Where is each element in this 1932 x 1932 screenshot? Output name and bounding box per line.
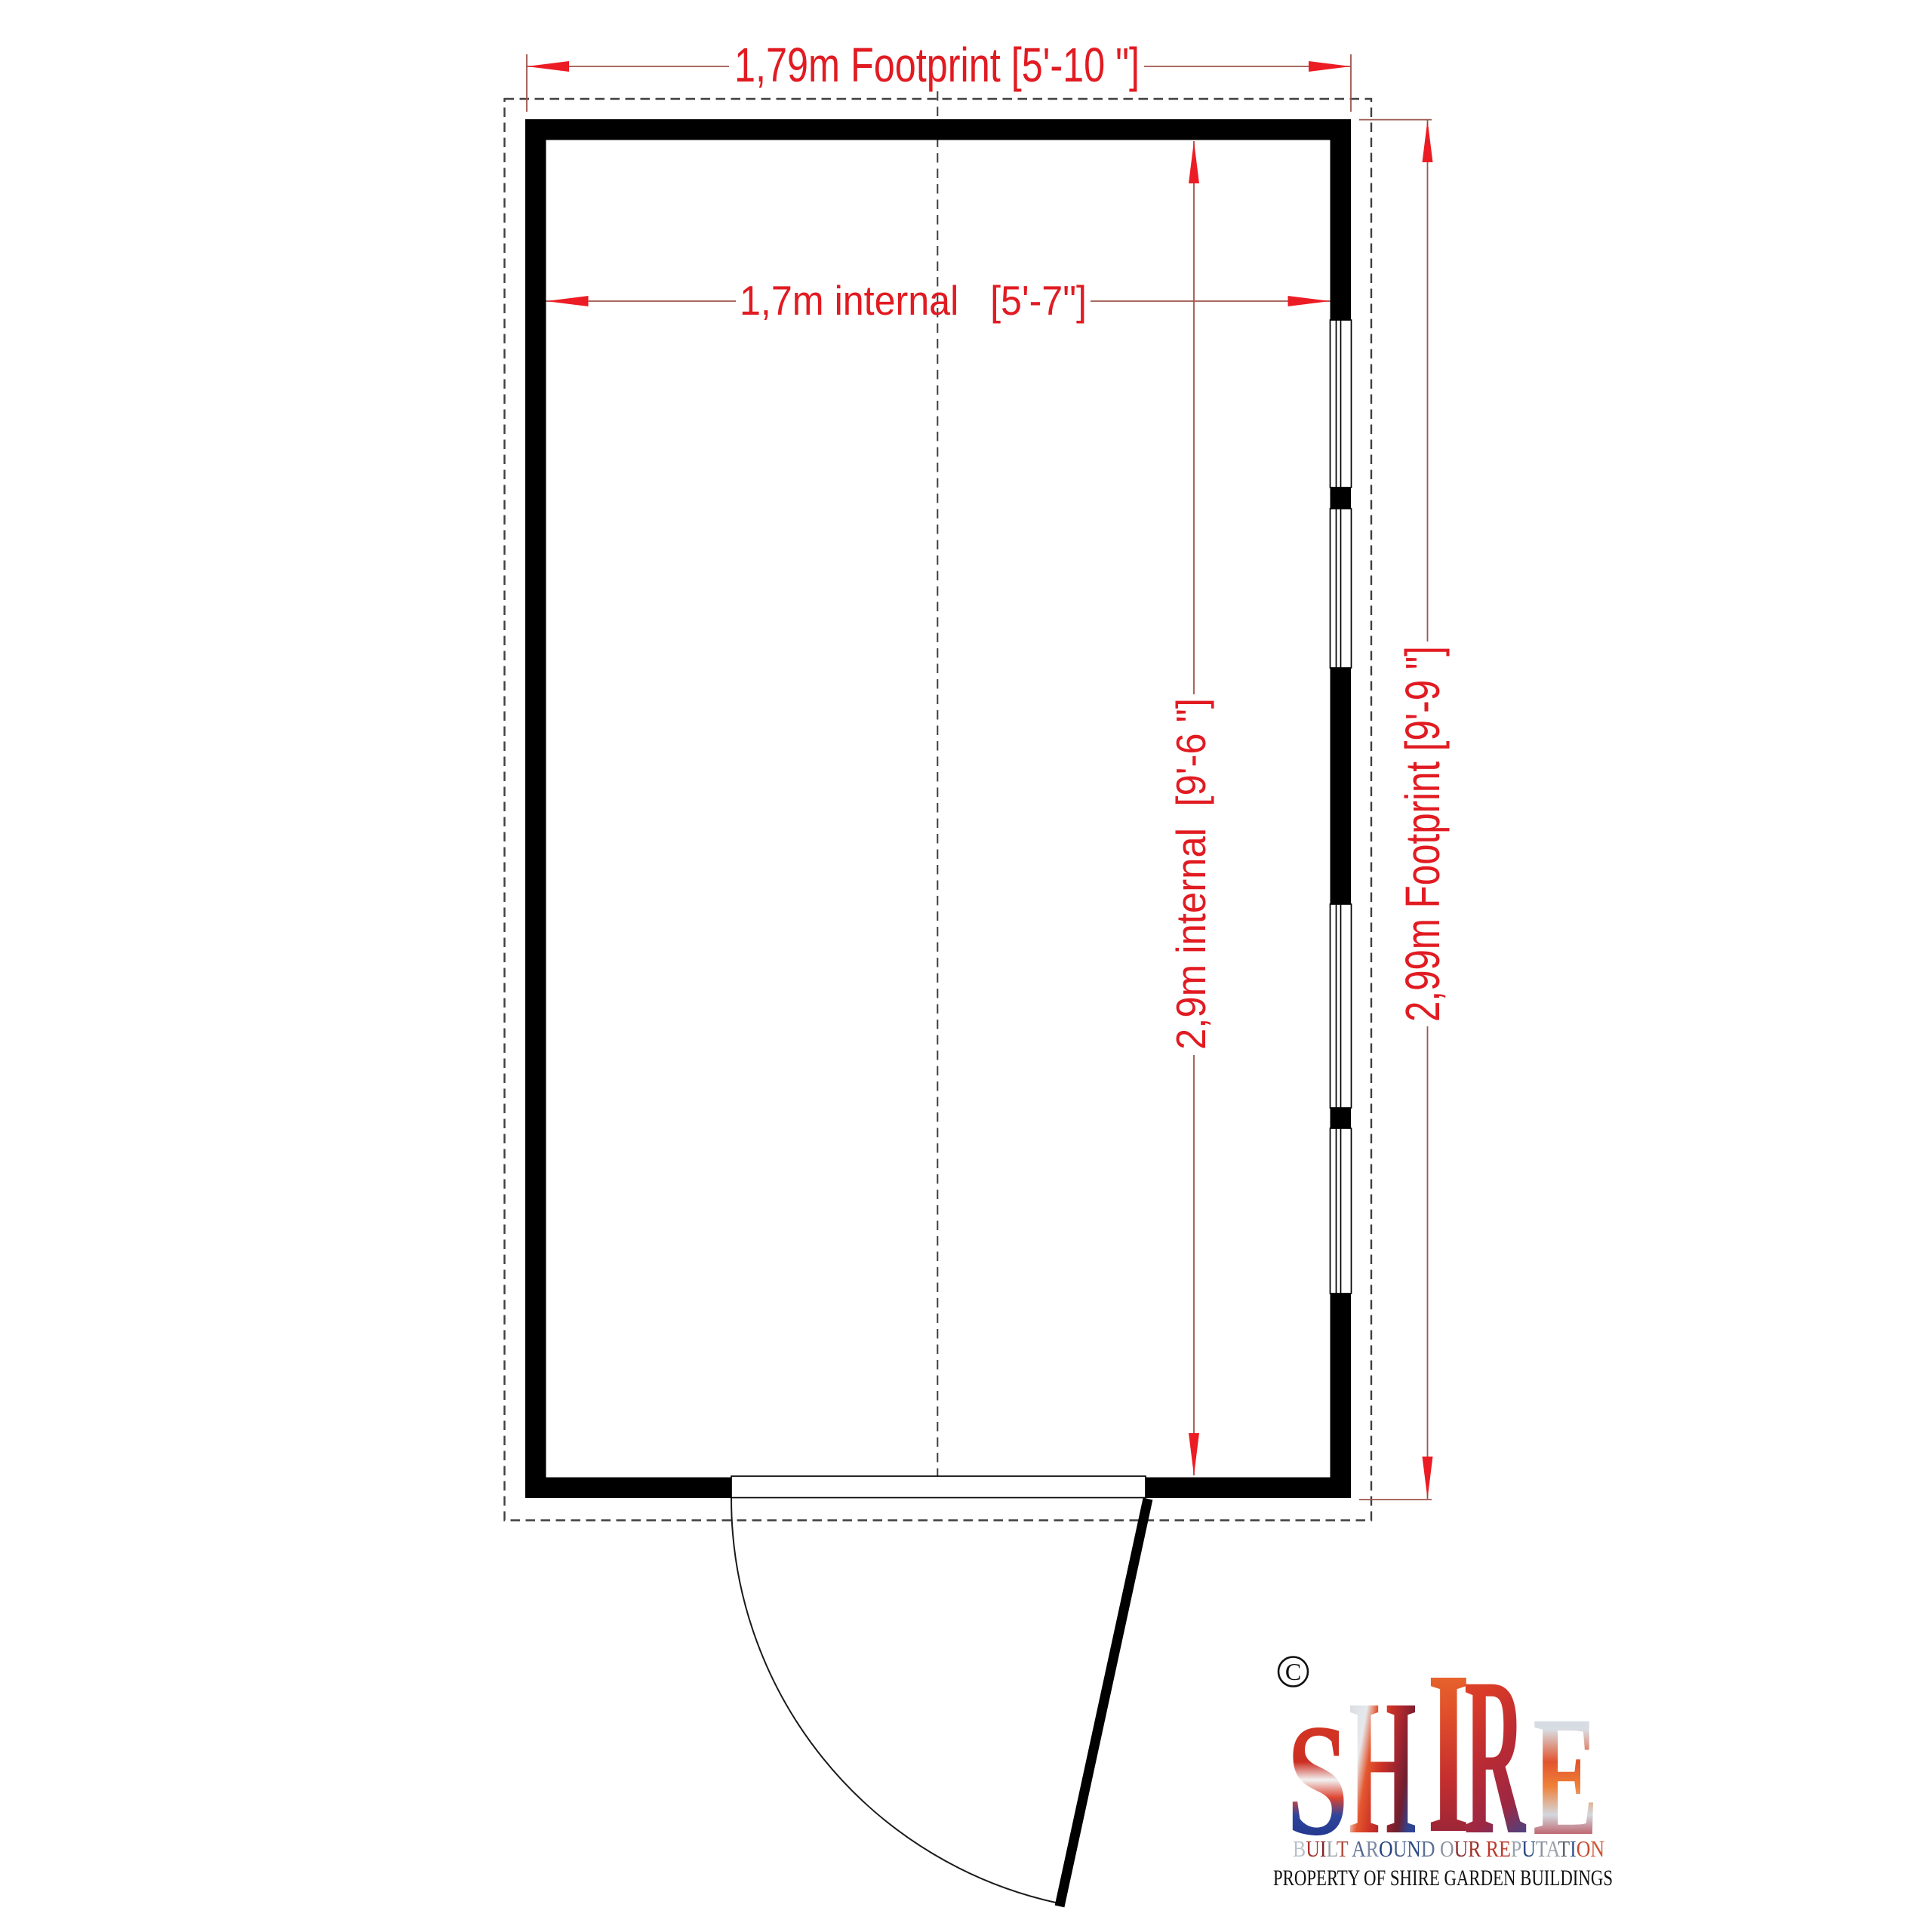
svg-text:2,99m Footprint [9'-9 "]: 2,99m Footprint [9'-9 "] — [1395, 646, 1450, 1022]
svg-text:PROPERTY OF SHIRE GARDEN BUILD: PROPERTY OF SHIRE GARDEN BUILDINGS — [1273, 1866, 1613, 1890]
svg-text:2,9m internal [9'-6 "]: 2,9m internal [9'-6 "] — [1168, 698, 1214, 1050]
svg-text:C: C — [1285, 1658, 1301, 1685]
svg-text:1,79m Footprint [5'-10 "]: 1,79m Footprint [5'-10 "] — [734, 38, 1140, 92]
svg-text:1,7m internal [5'-7"]: 1,7m internal [5'-7"] — [740, 277, 1087, 324]
svg-text:BUILT AROUND OUR REPUTATION: BUILT AROUND OUR REPUTATION — [1293, 1835, 1604, 1862]
